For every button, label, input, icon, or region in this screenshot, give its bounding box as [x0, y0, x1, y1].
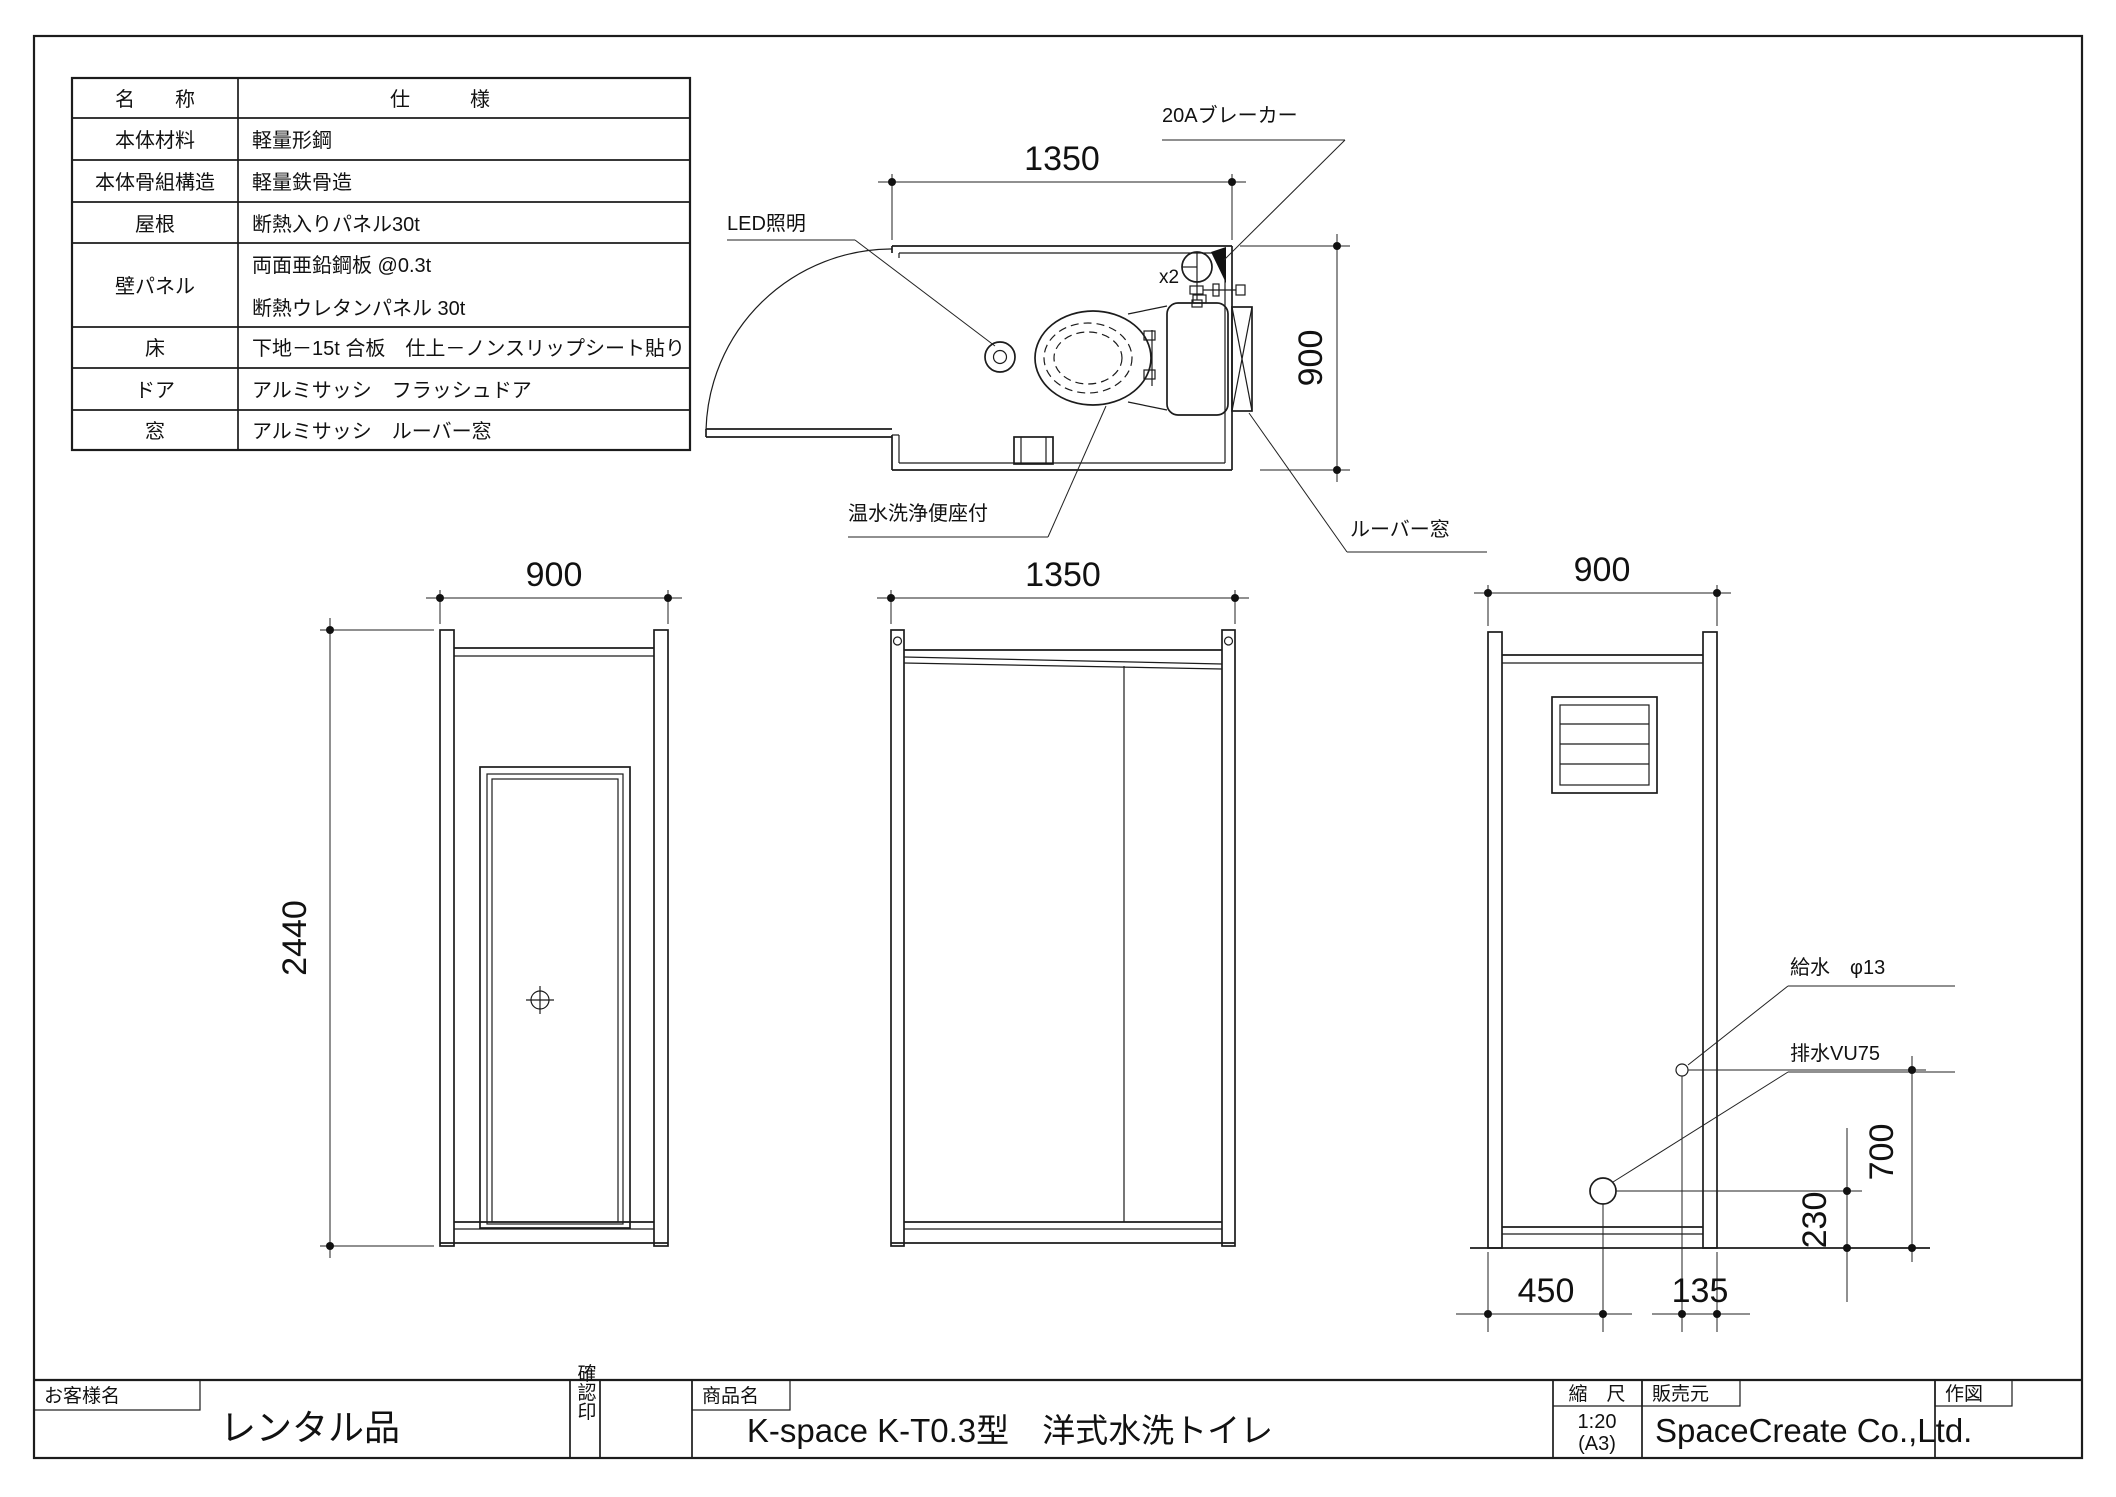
- rear-dim-230: 230: [1616, 1128, 1862, 1302]
- flush-door: [480, 767, 630, 1228]
- plan-dim-depth: 900: [1240, 234, 1350, 482]
- spec-row-value: アルミサッシ フラッシュドア: [252, 380, 532, 402]
- label-breaker-qty: x2: [1159, 267, 1179, 288]
- svg-text:900: 900: [1574, 551, 1631, 589]
- spec-row-name: 屋根: [135, 213, 175, 236]
- spec-row-name: 窓: [145, 420, 165, 443]
- customer-label: お客様名: [44, 1385, 120, 1407]
- svg-text:20Aブレーカー: 20Aブレーカー: [1162, 103, 1298, 127]
- svg-text:2440: 2440: [276, 900, 314, 976]
- seller-label: 販売元: [1652, 1383, 1709, 1405]
- door-knob-icon: [526, 986, 554, 1014]
- customer-value: レンタル品: [220, 1407, 400, 1448]
- label-louver: ルーバー窓: [1249, 413, 1487, 552]
- sheet-border: [34, 36, 2082, 1458]
- svg-text:温水洗浄便座付: 温水洗浄便座付: [848, 502, 988, 525]
- louver-window-plan: [1232, 307, 1252, 411]
- spec-row-value: 下地－15t 合板 仕上－ノンスリップシート貼り: [252, 337, 685, 360]
- svg-text:排水VU75: 排水VU75: [1790, 1042, 1880, 1065]
- bolt-icon: [1225, 637, 1233, 645]
- drawn-label: 作図: [1945, 1383, 1983, 1405]
- title-block: お客様名 レンタル品 確認印 商品名 K-space K-T0.3型 洋式水洗ト…: [34, 1363, 2082, 1458]
- product-label: 商品名: [702, 1385, 759, 1407]
- spec-row-value: 断熱入りパネル30t: [252, 213, 420, 236]
- scale-label: 縮 尺: [1568, 1383, 1625, 1405]
- drain-icon: [1590, 1178, 1616, 1204]
- svg-text:1350: 1350: [1024, 140, 1100, 178]
- seller-section: 販売元 SpaceCreate Co.,Ltd.: [1642, 1380, 1972, 1449]
- spec-row-value: アルミサッシ ルーバー窓: [252, 420, 492, 443]
- spec-row-value: 軽量形鋼: [252, 129, 332, 152]
- svg-text:1350: 1350: [1025, 556, 1101, 594]
- label-drain: 排水VU75: [1613, 1042, 1955, 1182]
- elevation-rear: 給水 φ13 排水VU75 700 230: [1456, 551, 1955, 1332]
- toilet-plan: [1035, 306, 1167, 410]
- side-dim-width: 1350: [877, 556, 1249, 624]
- spec-row-value: 両面亜鉛鋼板 @0.3t: [252, 254, 432, 277]
- svg-text:450: 450: [1518, 1272, 1575, 1310]
- spec-row-name: ドア: [135, 380, 175, 402]
- stamp-label: 確認印: [575, 1363, 597, 1420]
- spec-row-name: 本体材料: [115, 129, 195, 152]
- scale-value: 1:20: [1578, 1411, 1617, 1433]
- rear-dim-width: 900: [1474, 551, 1731, 626]
- svg-text:135: 135: [1672, 1272, 1729, 1310]
- spec-header-name: 名 称: [115, 88, 195, 111]
- spec-table: 名 称 仕 様 本体材料 軽量形鋼 本体骨組構造 軽量鉄骨造 屋根 断熱入りパネ…: [72, 78, 690, 450]
- plan-walls: [892, 246, 1232, 470]
- customer-section: お客様名 レンタル品: [34, 1380, 400, 1448]
- scale-paper: (A3): [1578, 1433, 1616, 1455]
- front-dim-height: 2440: [276, 618, 434, 1258]
- plan-door-swing: [706, 249, 892, 437]
- product-section: 商品名 K-space K-T0.3型 洋式水洗トイレ: [692, 1380, 1273, 1449]
- spec-row-name: 床: [145, 337, 165, 360]
- label-breaker: 20Aブレーカー x2: [1159, 103, 1345, 288]
- svg-text:給水 φ13: 給水 φ13: [1790, 956, 1885, 979]
- seller-value: SpaceCreate Co.,Ltd.: [1655, 1412, 1972, 1449]
- product-value: K-space K-T0.3型 洋式水洗トイレ: [747, 1412, 1273, 1449]
- svg-text:230: 230: [1796, 1192, 1834, 1249]
- spec-row-value: 断熱ウレタンパネル 30t: [252, 297, 466, 320]
- svg-text:ルーバー窓: ルーバー窓: [1350, 518, 1450, 541]
- front-dim-width: 900: [426, 556, 682, 624]
- elevation-front: 900 2440: [276, 556, 682, 1258]
- led-light-icon: [985, 342, 1015, 372]
- label-toilet: 温水洗浄便座付: [848, 406, 1106, 537]
- spec-row-name: 壁パネル: [115, 275, 195, 298]
- rear-dim-450-135: 450 135: [1456, 1076, 1750, 1332]
- svg-text:700: 700: [1863, 1124, 1901, 1181]
- plan-view: 1350 900 LED照明 20Aブレーカー x2 温水洗浄便座付: [706, 103, 1487, 552]
- floor-box: [1014, 437, 1053, 464]
- louver-window-rear: [1552, 697, 1657, 793]
- water-supply-icon: [1676, 1064, 1688, 1076]
- svg-text:900: 900: [526, 556, 583, 594]
- svg-text:900: 900: [1292, 330, 1330, 387]
- svg-text:LED照明: LED照明: [727, 213, 806, 235]
- scale-section: 縮 尺 1:20 (A3): [1553, 1383, 1642, 1455]
- elevation-side: 1350: [877, 556, 1249, 1246]
- bolt-icon: [894, 637, 902, 645]
- spec-header-spec: 仕 様: [390, 88, 490, 111]
- label-led: LED照明: [727, 213, 995, 346]
- drawn-section: 作図: [1935, 1380, 2012, 1406]
- drawing-sheet: 名 称 仕 様 本体材料 軽量形鋼 本体骨組構造 軽量鉄骨造 屋根 断熱入りパネ…: [0, 0, 2116, 1497]
- toilet-tank: [1167, 295, 1228, 415]
- spec-row-name: 本体骨組構造: [95, 171, 215, 194]
- plan-dim-width: 1350: [878, 140, 1246, 240]
- spec-row-value: 軽量鉄骨造: [252, 171, 352, 194]
